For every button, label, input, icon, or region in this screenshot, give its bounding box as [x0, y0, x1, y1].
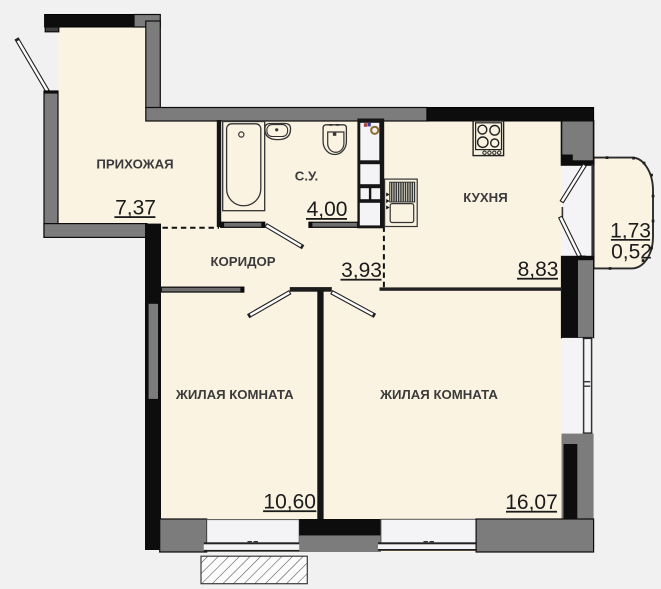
- svg-text:КУХНЯ: КУХНЯ: [463, 190, 507, 205]
- svg-text:С.У.: С.У.: [295, 169, 318, 184]
- svg-text:1,73: 1,73: [610, 219, 651, 242]
- svg-text:7,37: 7,37: [115, 197, 156, 220]
- svg-text:ПРИХОЖАЯ: ПРИХОЖАЯ: [96, 157, 173, 172]
- svg-text:16,07: 16,07: [505, 491, 558, 514]
- svg-text:0,52: 0,52: [611, 241, 652, 264]
- svg-text:8,83: 8,83: [518, 258, 559, 281]
- svg-text:4,00: 4,00: [307, 198, 348, 221]
- svg-text:КОРИДОР: КОРИДОР: [210, 254, 275, 269]
- svg-text:10,60: 10,60: [263, 491, 316, 514]
- svg-text:3,93: 3,93: [341, 259, 382, 282]
- svg-text:ЖИЛАЯ КОМНАТА: ЖИЛАЯ КОМНАТА: [379, 387, 498, 402]
- svg-text:ЖИЛАЯ КОМНАТА: ЖИЛАЯ КОМНАТА: [175, 387, 294, 402]
